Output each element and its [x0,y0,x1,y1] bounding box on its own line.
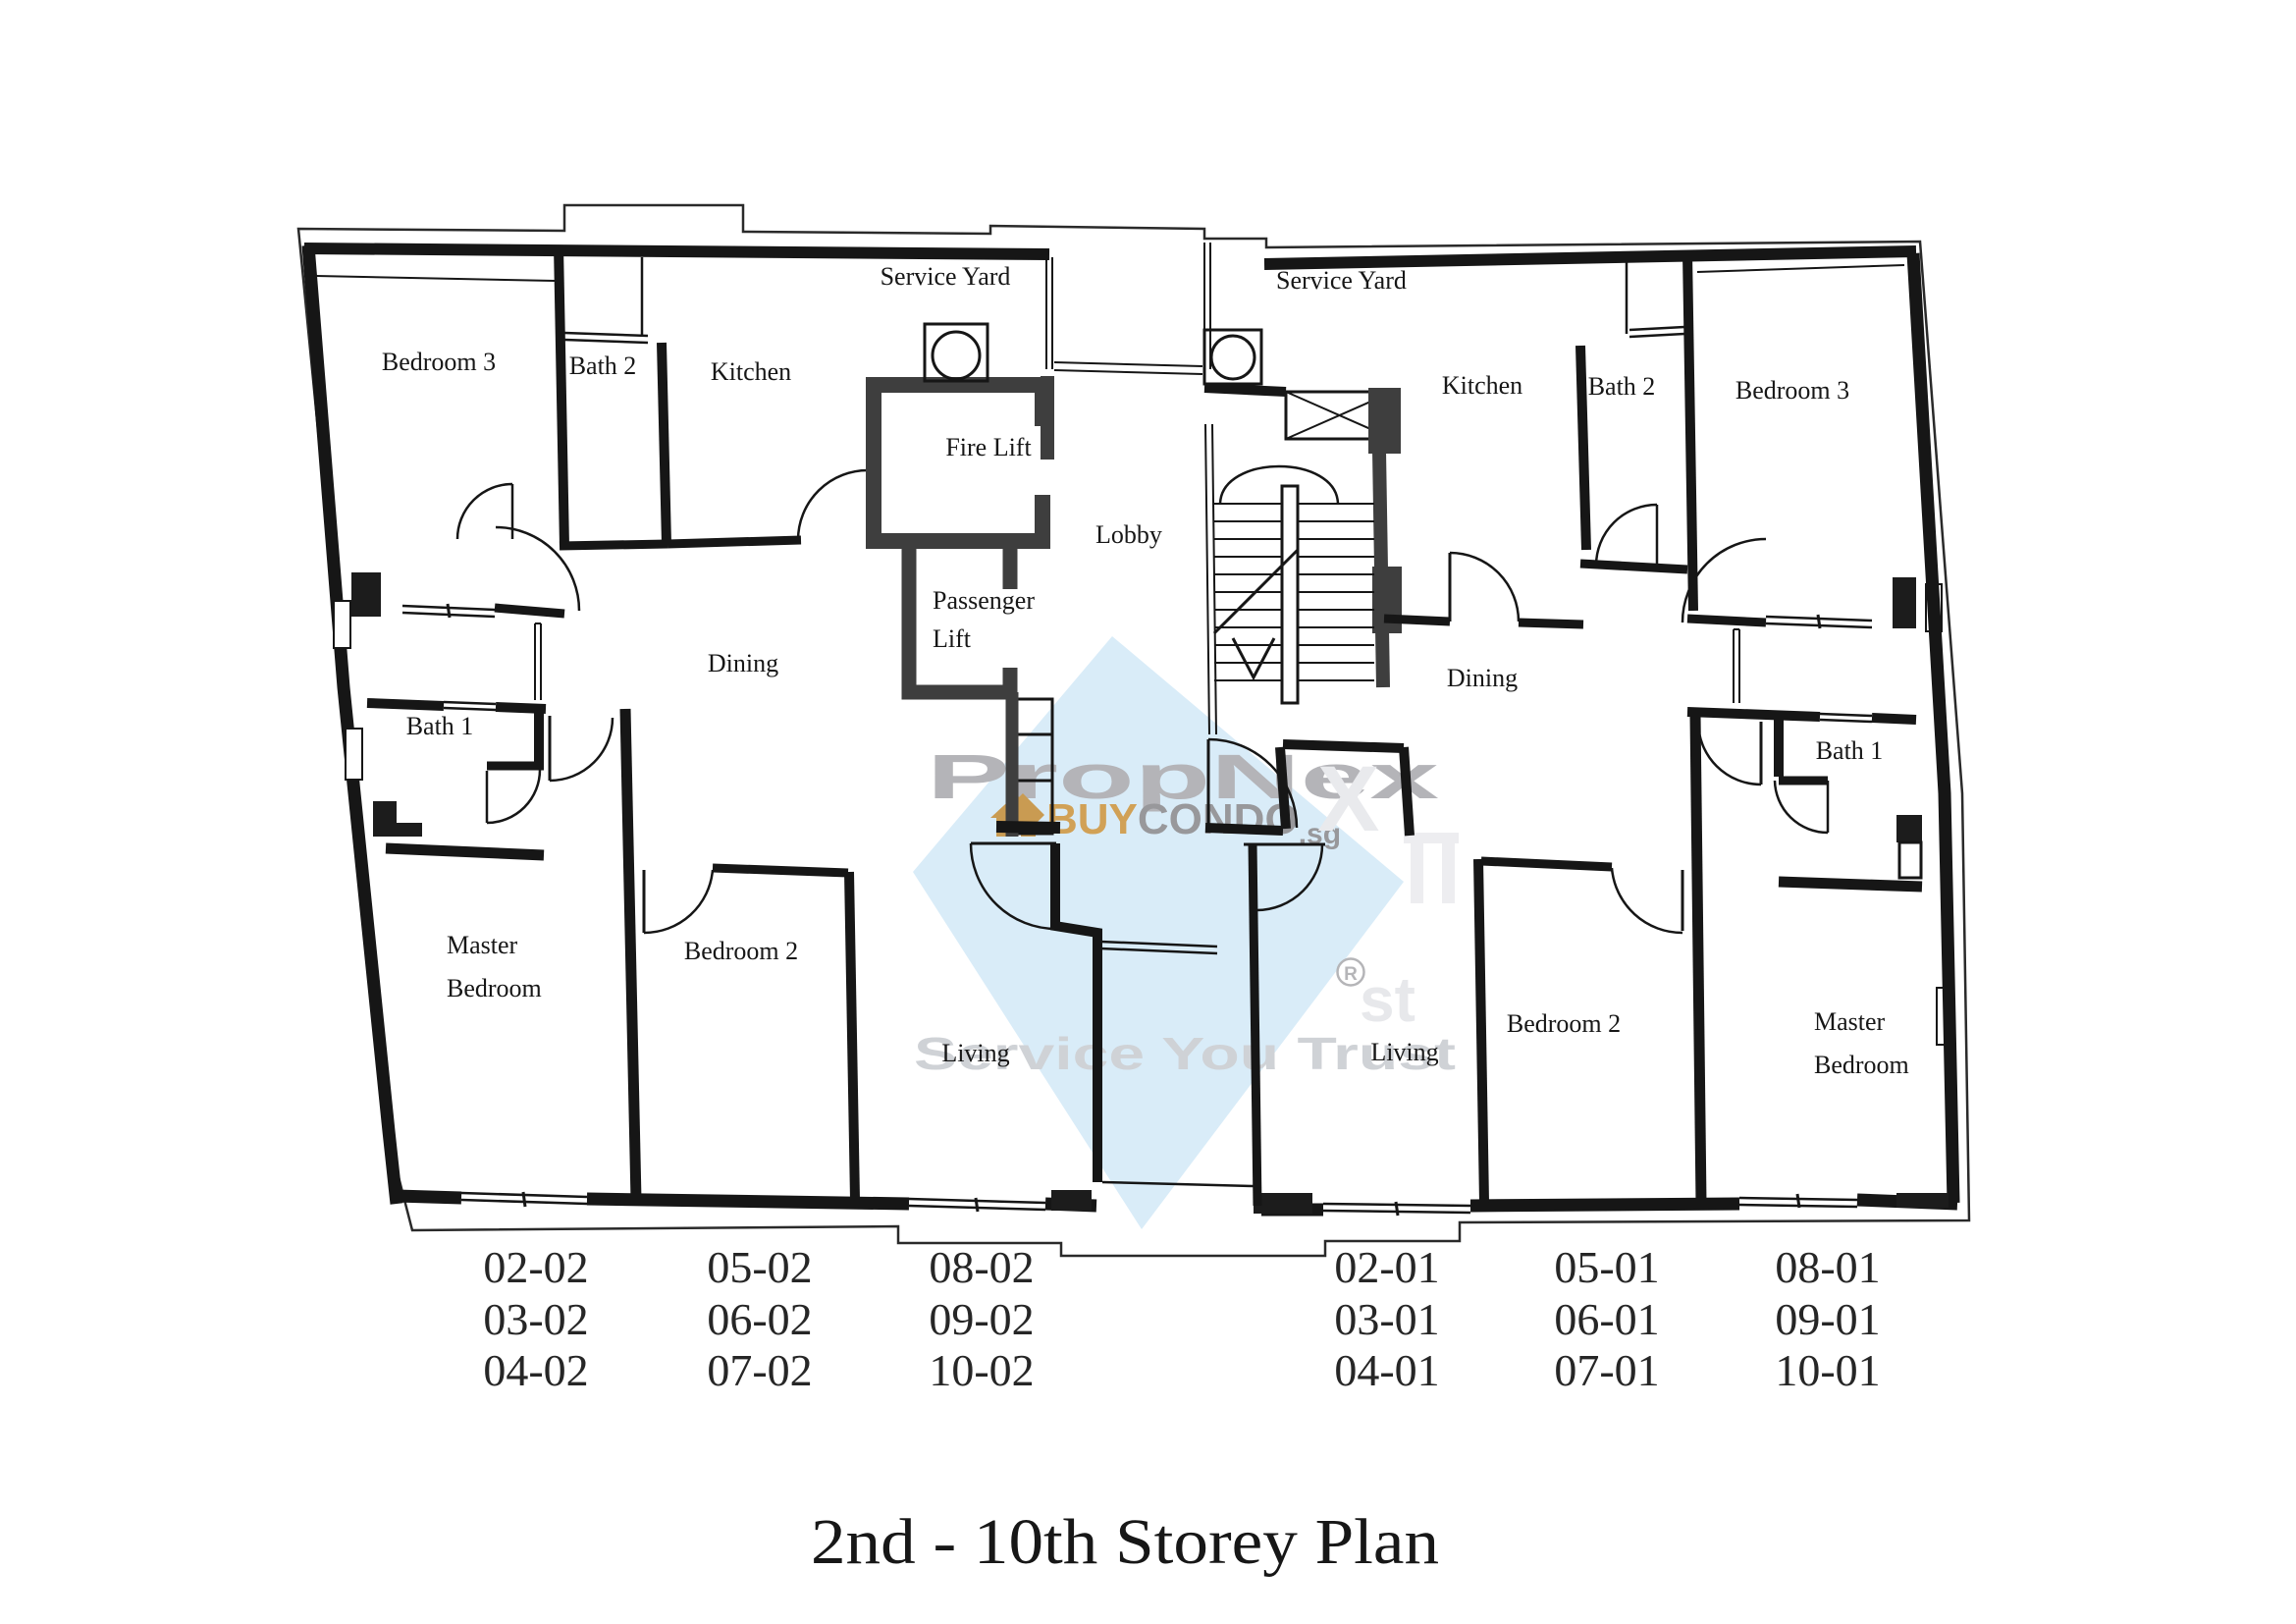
svg-text:Bedroom 3: Bedroom 3 [1735,376,1849,405]
svg-text:10-01: 10-01 [1775,1345,1880,1395]
svg-text:Bedroom 2: Bedroom 2 [1507,1009,1621,1038]
svg-text:07-01: 07-01 [1554,1345,1659,1395]
svg-text:04-01: 04-01 [1334,1345,1439,1395]
svg-text:05-01: 05-01 [1554,1242,1659,1292]
svg-text:Master: Master [447,931,518,959]
svg-text:Living: Living [941,1039,1009,1067]
svg-text:Fire Lift: Fire Lift [945,433,1032,461]
svg-text:Bedroom 2: Bedroom 2 [684,937,798,965]
svg-text:05-02: 05-02 [707,1242,812,1292]
svg-text:Dining: Dining [708,649,778,677]
svg-text:Service Yard: Service Yard [1276,266,1407,295]
svg-text:03-01: 03-01 [1334,1294,1439,1344]
svg-text:08-01: 08-01 [1775,1242,1880,1292]
svg-text:08-02: 08-02 [929,1242,1034,1292]
svg-text:Bedroom 3: Bedroom 3 [382,348,496,376]
svg-text:Bath 1: Bath 1 [406,712,474,740]
svg-text:Bedroom: Bedroom [447,974,542,1002]
svg-text:Master: Master [1814,1007,1886,1036]
svg-text:Kitchen: Kitchen [711,357,791,386]
svg-text:Dining: Dining [1447,664,1518,692]
svg-text:Passenger: Passenger [933,586,1035,615]
svg-text:Service Yard: Service Yard [881,262,1011,291]
svg-text:09-02: 09-02 [929,1294,1034,1344]
svg-text:Bedroom: Bedroom [1814,1051,1909,1079]
svg-text:R: R [1344,964,1358,985]
svg-text:Lift: Lift [933,624,972,653]
svg-text:Kitchen: Kitchen [1442,371,1522,400]
svg-text:06-01: 06-01 [1554,1294,1659,1344]
svg-text:Bath 1: Bath 1 [1816,736,1884,765]
svg-text:Bath 2: Bath 2 [569,352,637,380]
svg-text:10-02: 10-02 [929,1345,1034,1395]
svg-text:st: st [1360,964,1415,1035]
svg-text:2nd - 10th Storey Plan: 2nd - 10th Storey Plan [811,1506,1439,1578]
svg-text:04-02: 04-02 [483,1345,588,1395]
svg-text:Lobby: Lobby [1095,520,1162,549]
svg-text:02-02: 02-02 [483,1242,588,1292]
svg-text:09-01: 09-01 [1775,1294,1880,1344]
svg-text:Living: Living [1370,1038,1438,1066]
svg-text:X: X [1317,747,1379,851]
svg-text:Bath 2: Bath 2 [1588,372,1656,401]
svg-text:03-02: 03-02 [483,1294,588,1344]
svg-text:07-02: 07-02 [707,1345,812,1395]
svg-text:06-02: 06-02 [707,1294,812,1344]
svg-text:02-01: 02-01 [1334,1242,1439,1292]
